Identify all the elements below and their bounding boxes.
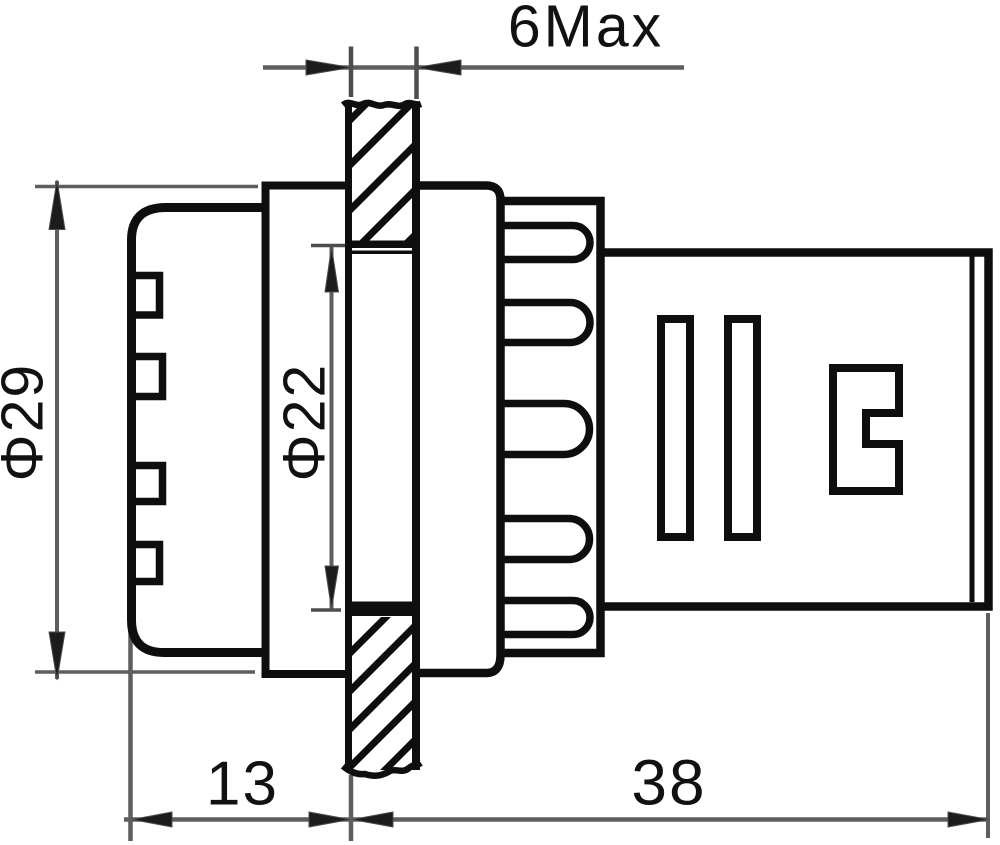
svg-text:Φ29: Φ29: [0, 363, 56, 482]
svg-text:13: 13: [206, 750, 279, 819]
svg-text:Φ22: Φ22: [272, 363, 338, 482]
svg-text:38: 38: [631, 747, 706, 819]
svg-text:6Max: 6Max: [508, 0, 664, 60]
